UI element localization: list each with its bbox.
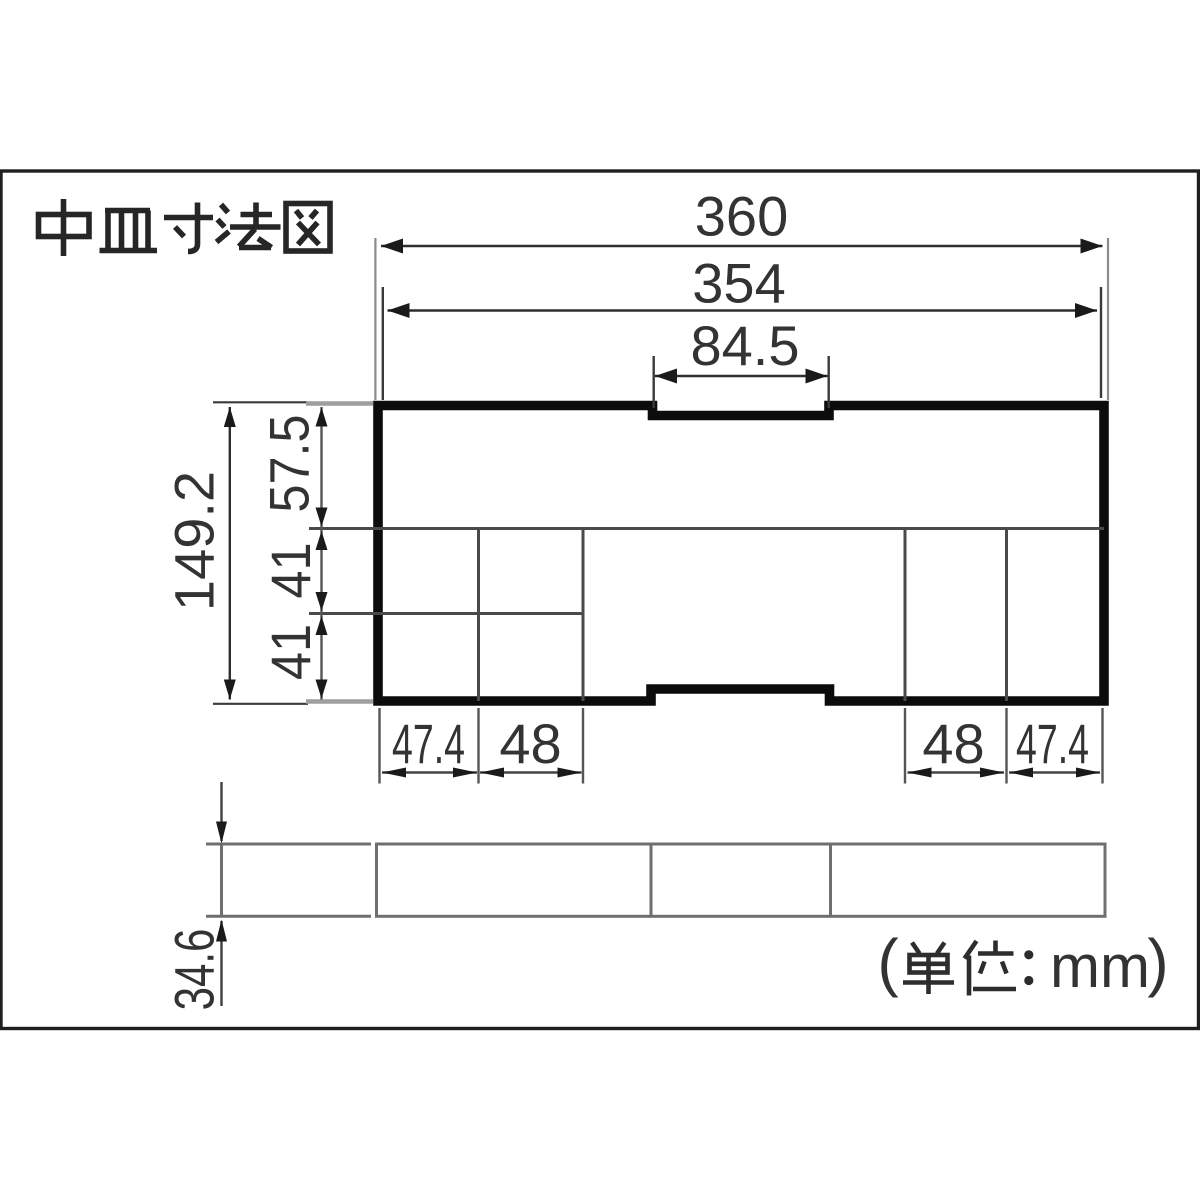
svg-text:84.5: 84.5	[691, 314, 800, 377]
svg-text:47.4: 47.4	[392, 714, 465, 776]
svg-text:34.6: 34.6	[164, 929, 226, 1011]
svg-text:360: 360	[695, 185, 788, 248]
svg-text:48: 48	[499, 712, 561, 775]
svg-text:149.2: 149.2	[163, 471, 226, 611]
svg-text:(: (	[877, 926, 898, 998]
svg-text:48: 48	[922, 712, 984, 775]
svg-text:mm: mm	[1050, 933, 1150, 1000]
svg-text:47.4: 47.4	[1016, 714, 1089, 776]
svg-text:41: 41	[261, 542, 323, 598]
svg-text:): )	[1147, 926, 1168, 998]
svg-text:354: 354	[692, 252, 785, 315]
svg-text:41: 41	[261, 624, 323, 680]
svg-text:57.5: 57.5	[259, 414, 321, 512]
